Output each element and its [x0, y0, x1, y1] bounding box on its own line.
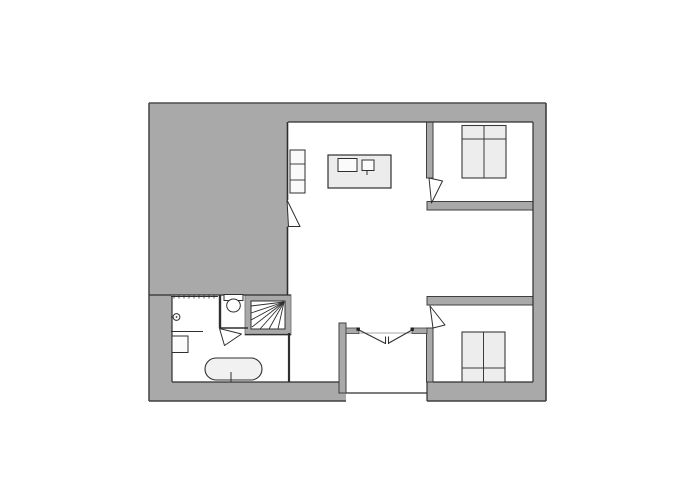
wall-bedroom2-top	[427, 297, 533, 306]
wall-entry-right	[412, 328, 427, 334]
bathtub	[205, 358, 262, 380]
wall-bottom-left	[149, 382, 346, 401]
wall-bedroom2-left	[427, 328, 434, 382]
wall-fixture-dot	[176, 316, 178, 318]
floor-plan	[0, 0, 700, 500]
door-bedroom1-swing	[429, 178, 443, 203]
wall-top	[288, 103, 546, 122]
wall-vestibule-stub	[339, 323, 346, 393]
entry-door-hinge-right	[411, 328, 414, 331]
kitchen-counter	[290, 150, 305, 193]
entry-door-hinge-left	[357, 328, 360, 331]
toilet-bowl	[227, 299, 241, 312]
entry-door-right-leaf	[388, 330, 412, 344]
door-west-swing	[287, 200, 300, 227]
floor-plan-image	[0, 0, 700, 500]
wall-mid-right	[427, 202, 533, 211]
wall-bedroom1-left	[427, 122, 434, 178]
wall-bottom-right	[427, 382, 546, 401]
door-bedroom2-swing	[430, 306, 445, 328]
wall-block-nw	[149, 103, 288, 295]
island-cooktop	[338, 159, 357, 172]
entry-door-left-leaf	[359, 330, 386, 344]
kitchen-island	[328, 155, 391, 188]
wall-left-lower	[149, 295, 172, 382]
wall-right	[533, 103, 546, 401]
island-sink	[362, 160, 374, 171]
washbasin-cabinet	[172, 336, 188, 353]
door-bathroom-swing	[220, 329, 242, 346]
